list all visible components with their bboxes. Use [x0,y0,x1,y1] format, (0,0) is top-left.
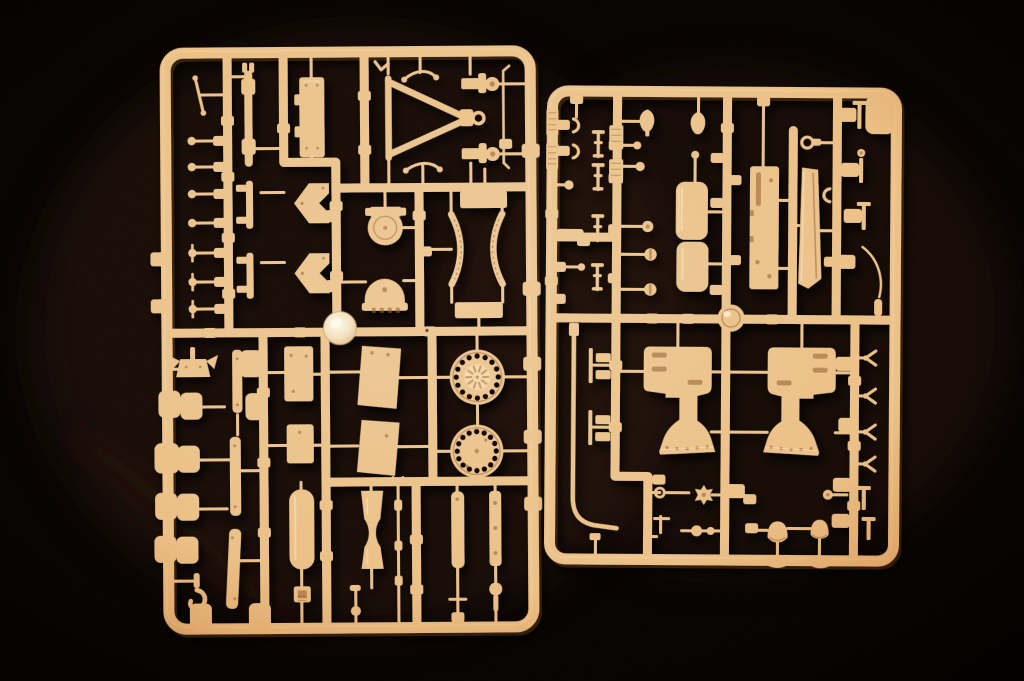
dark-vignette [0,0,1024,681]
sprue-photo [0,0,1024,681]
sprue-photo-svg [0,0,1024,681]
